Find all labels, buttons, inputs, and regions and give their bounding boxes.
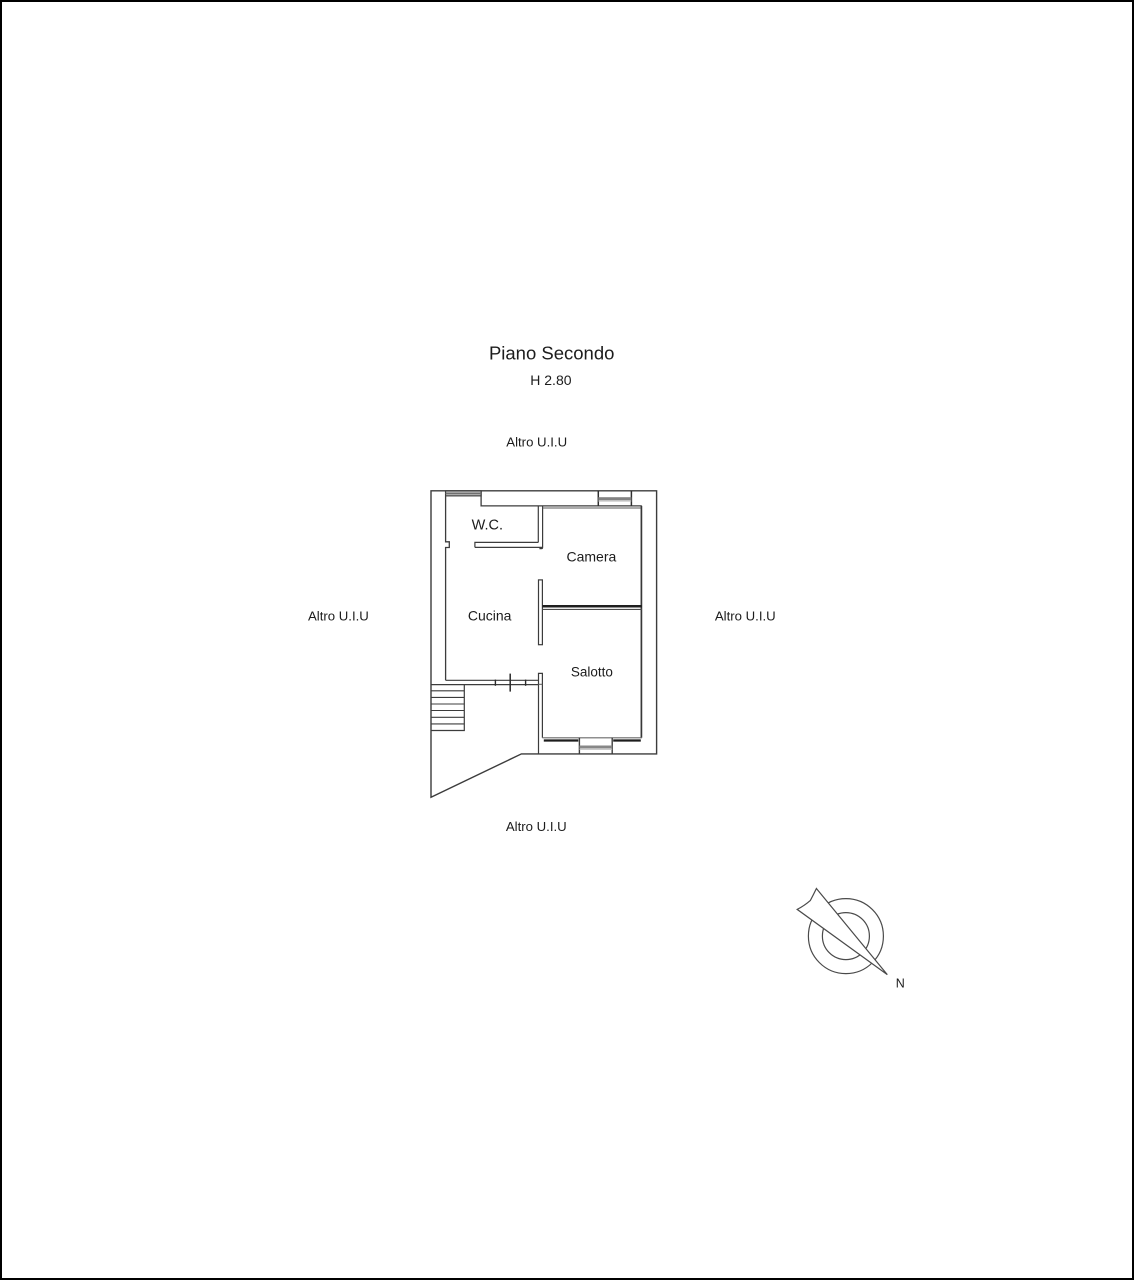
svg-text:Altro U.I.U: Altro U.I.U xyxy=(715,608,776,623)
svg-text:H 2.80: H 2.80 xyxy=(530,372,571,388)
svg-text:Altro U.I.U: Altro U.I.U xyxy=(308,608,369,623)
svg-text:Piano Secondo: Piano Secondo xyxy=(489,342,615,363)
svg-text:Altro U.I.U: Altro U.I.U xyxy=(506,434,567,449)
svg-text:Cucina: Cucina xyxy=(468,607,512,623)
svg-text:Altro U.I.U: Altro U.I.U xyxy=(506,819,567,834)
svg-text:N: N xyxy=(896,976,905,990)
svg-text:Camera: Camera xyxy=(567,549,617,565)
svg-text:W.C.: W.C. xyxy=(472,517,503,533)
svg-text:Salotto: Salotto xyxy=(571,665,613,680)
